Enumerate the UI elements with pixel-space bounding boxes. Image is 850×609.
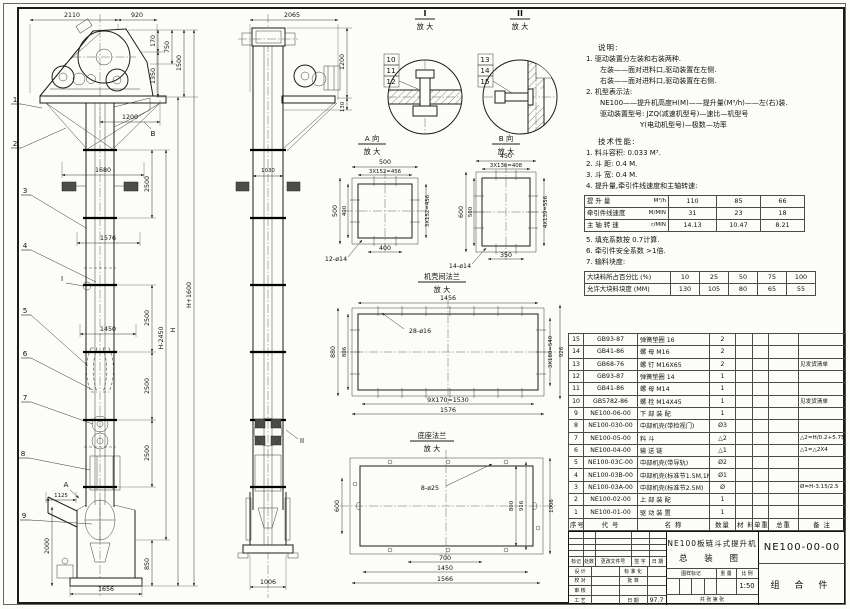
bom-cell [799, 370, 846, 382]
detail-subtitle: 放 大 [434, 285, 451, 294]
bom-cell [769, 506, 799, 518]
tb-label-stamp: 图样标记 [666, 568, 716, 578]
dim-label: 1125 [54, 493, 68, 499]
bom-cell: 2 [710, 334, 736, 346]
block-value: 25 [700, 272, 729, 284]
bom-cell [753, 432, 769, 444]
holes-label: 14-ø14 [449, 263, 471, 270]
bom-cell [736, 469, 753, 481]
bom-cell: 中部机壳(标准节2.5M) [638, 481, 710, 493]
balloon-10: 10 [386, 55, 396, 64]
view-A-detail: A 向 放 大 500 3X152=456 500 400 3X152=456 … [325, 134, 431, 263]
balloon-13: 13 [480, 55, 489, 64]
bom-cell [753, 334, 769, 346]
perf-unit: M³/h [654, 196, 667, 207]
note-line: Y(电动机型号)—极数—功率 [640, 120, 842, 131]
table-row: 牵引件线速度M/MIN312318 [585, 208, 805, 220]
tb-label-process: 工 艺 [569, 595, 591, 605]
bom-cell [769, 370, 799, 382]
bom-cell [769, 407, 799, 419]
bom-cell: 1 [710, 494, 736, 506]
block-value: 50 [729, 272, 758, 284]
bom-cell: GB68-76 [584, 358, 638, 370]
bom-cell: 1 [710, 370, 736, 382]
dim-label: 500 [468, 206, 474, 217]
perf-label-text: 提 升 量 [587, 197, 610, 205]
tb-label-scale: 比 例 [736, 568, 758, 578]
bom-cell: Ø1 [710, 469, 736, 481]
table-row: 提 升 量M³/h1108566 [585, 196, 805, 208]
perf-value: 18 [761, 208, 805, 220]
bom-cell: NE100-02-00 [584, 494, 638, 506]
bom-cell [769, 383, 799, 395]
dim-label: 3X152=456 [369, 169, 402, 175]
detail-II: II 放 大 13 14 15 [478, 9, 557, 136]
base-plate [70, 578, 142, 586]
dim-label: H [170, 327, 177, 332]
perf-value: 8.21 [761, 220, 805, 232]
detail-subtitle: 放 大 [417, 22, 434, 31]
tb-part-type: 组 合 件 [758, 563, 846, 605]
dim-label: 170 [150, 35, 157, 47]
dim-label: 2500 [144, 445, 151, 461]
tb-label-review: 审 核 [569, 585, 591, 595]
bom-cell: 2 [569, 494, 584, 506]
bom-cell [799, 346, 846, 358]
bom-cell: 13 [569, 358, 584, 370]
perf-label: 主 轴 转 速r/MIN [585, 220, 669, 232]
balloon-7: 7 [23, 393, 28, 402]
bom-cell: NE100-03C-00 [584, 457, 638, 469]
balloon-11: 11 [386, 66, 395, 75]
detail-marker-II: II [300, 436, 304, 445]
bom-cell: 料 斗 [638, 432, 710, 444]
bom-cell: NE100-03B-00 [584, 469, 638, 481]
block-value: 105 [700, 284, 729, 296]
tb-date-value: 97.7 [647, 595, 666, 605]
bom-cell [769, 432, 799, 444]
bucket [87, 348, 98, 392]
tb-scale-value: 1:50 [736, 578, 758, 594]
dim-label: 926 [559, 346, 565, 357]
drawing-sheet: 2110 920 170 1350 750 1500 1200 B [0, 0, 850, 609]
dim-label: 2110 [64, 12, 80, 19]
bom-cell [736, 420, 753, 432]
bom-cell [736, 407, 753, 419]
dim-label: 1566 [437, 576, 453, 583]
bom-cell [753, 395, 769, 407]
dim-label: 4X139=556 [543, 195, 549, 228]
bom-cell [753, 444, 769, 456]
bom-cell: GB5782-86 [584, 395, 638, 407]
note-line: NE100——提升机高度H(M)——提升量(M³/h)——左(右)装. [600, 98, 842, 109]
balloon-8: 8 [21, 449, 26, 458]
bom-row: 10GB5782-86螺 栓 M14X451见发货清单 [569, 395, 846, 407]
bom-cell: GB93-87 [584, 370, 638, 382]
tb-label-weight: 重 量 [716, 568, 736, 578]
note-line: 右装——面对进料口,驱动装置在右侧. [600, 76, 842, 87]
title-block: 标记 处数 更改文件号 签 字 日 期 设 计 标 准 化 校 对 批 准 审 … [568, 531, 845, 604]
bom-cell: △1=△2X4 [799, 444, 846, 456]
balloon-15: 15 [480, 77, 489, 86]
bom-cell: 见发货清单 [799, 395, 846, 407]
perf-label: 提 升 量M³/h [585, 196, 669, 208]
block-value: 75 [758, 272, 787, 284]
dim-label: 806 [342, 346, 348, 357]
tb-label-check: 校 对 [569, 576, 591, 585]
bom-cell [753, 420, 769, 432]
bom-cell [753, 506, 769, 518]
bom-cell [769, 494, 799, 506]
bom-row: 9NE100-06-00下 部 装 配1 [569, 407, 846, 419]
bom-row: 7NE100-05-00料 斗△2△2=H/0.2+5.75 [569, 432, 846, 444]
block-value: 55 [787, 284, 816, 296]
bom-row: 5NE100-03C-00中部机壳(带导轨)Ø2 [569, 457, 846, 469]
bom-row: 12GB93-87弹簧垫圈 141 [569, 370, 846, 382]
tb-sheet-name: 总 装 图 [666, 551, 758, 565]
bom-cell: 11 [569, 383, 584, 395]
tb-product-name: NE100板链斗式提升机 [666, 536, 758, 550]
bom-row: 2NE100-02-00上 部 装 配1 [569, 494, 846, 506]
bom-cell [769, 420, 799, 432]
tech-notes: 5. 填充系数按 0.7计算.6. 牵引件安全系数 >1倍.7. 输料块度: [584, 235, 842, 268]
detail-title: 底座法兰 [418, 431, 447, 440]
dim-label: 9X170=1530 [427, 397, 469, 404]
bom-row: 3NE100-03A-00中部机壳(标准节2.5M)ØØ=H-3.15/2.5 [569, 481, 846, 493]
dim-label: 2500 [144, 176, 151, 192]
dim-label: 3X152=456 [425, 194, 431, 227]
front-view: 2110 920 170 1350 750 1500 1200 B [11, 12, 198, 597]
balloon-12: 12 [386, 77, 395, 86]
perf-value: 10.47 [717, 220, 761, 232]
bom-cell: 12 [569, 370, 584, 382]
block-value: 100 [787, 272, 816, 284]
bom-cell [736, 370, 753, 382]
tb-drawing-number: NE100-00-00 [758, 532, 846, 563]
wall-bracket [62, 182, 76, 191]
perf-value: 85 [717, 196, 761, 208]
note-line: 2. 机型表示法: [586, 87, 842, 98]
dim-label: 3X136=408 [490, 163, 523, 169]
bom-cell [753, 481, 769, 493]
bom-header-cell: 总重 [769, 518, 799, 530]
bom-cell [736, 358, 753, 370]
bom-cell [736, 506, 753, 518]
bom-cell [799, 407, 846, 419]
dim-label: 1450 [437, 565, 453, 572]
bom-cell [799, 494, 846, 506]
dim-label: 500 [379, 159, 391, 166]
bom-row: 14GB41-86螺 母 M162 [569, 346, 846, 358]
bom-cell: 4 [569, 469, 584, 481]
bom-cell [736, 383, 753, 395]
tech-title: 技术性能: [598, 136, 842, 147]
block-label: 大块料所占百分比 (%) [585, 272, 671, 284]
dim-label: 916 [519, 500, 525, 511]
perf-value: 23 [717, 208, 761, 220]
bom-cell [753, 469, 769, 481]
tech-item: 5. 填充系数按 0.7计算. [586, 235, 842, 246]
balloon-3: 3 [23, 186, 28, 195]
bom-header-cell: 代 号 [584, 518, 638, 530]
table-row: 主 轴 转 速r/MIN14.1310.478.21 [585, 220, 805, 232]
dim-label: 1200 [339, 54, 346, 70]
bom-cell: 3 [569, 481, 584, 493]
bom-cell: 5 [569, 457, 584, 469]
bom-cell [736, 457, 753, 469]
bom-cell [736, 494, 753, 506]
bom-cell: 2 [710, 346, 736, 358]
bom-cell [736, 432, 753, 444]
bom-cell [769, 358, 799, 370]
bom-cell [736, 444, 753, 456]
dim-label: H-2450 [158, 326, 165, 349]
bom-cell: NE100-030-00 [584, 420, 638, 432]
dim-label: 400 [342, 205, 348, 216]
bom-cell [753, 370, 769, 382]
bom-row: 13GB68-76螺 钉 M16X652见发货清单 [569, 358, 846, 370]
tb-label-doc: 更改文件号 [595, 556, 631, 566]
bom-cell [753, 358, 769, 370]
balloon-2: 2 [13, 139, 18, 148]
bom-cell [736, 334, 753, 346]
tech-item: 4. 提升量,牵引件线速度和主轴转速: [586, 181, 842, 192]
bom-cell: 上 部 装 配 [638, 494, 710, 506]
tb-sheet-count: 共 张 第 张 [666, 594, 758, 605]
bom-cell [736, 346, 753, 358]
bom-cell [769, 395, 799, 407]
balloon-5: 5 [23, 306, 28, 315]
lump-size-table: 大块料所占百分比 (%)10255075100允许大块料块度 (MM)13010… [584, 271, 816, 296]
dim-label: 2065 [284, 12, 300, 19]
bom-cell: 弹簧垫圈 16 [638, 334, 710, 346]
tech-lines: 1. 料斗容积: 0.033 M³.2. 斗 距: 0.4 M.3. 斗 宽: … [584, 148, 842, 192]
bom-cell: 螺 母 M16 [638, 346, 710, 358]
perf-value: 66 [761, 196, 805, 208]
flange-detail: 机壳间法兰 放 大 1456 28-ø16 880 806 3X180=540 … [330, 272, 565, 414]
tb-label-sign: 签 字 [631, 556, 649, 566]
bom-cell [736, 481, 753, 493]
bom-cell: 7 [569, 432, 584, 444]
bom-cell [799, 420, 846, 432]
bom-cell: △2=H/0.2+5.75 [799, 432, 846, 444]
perf-value: 110 [669, 196, 717, 208]
bom-header-cell: 名 称 [638, 518, 710, 530]
bom-header-cell: 单重 [753, 518, 769, 530]
bom-header-row: 序号代 号名 称数量材 料单重总重备 注 [569, 518, 846, 530]
dim-label: 1656 [98, 586, 114, 593]
dim-label: 3X180=540 [548, 335, 554, 368]
tb-label-date2: 日 期 [619, 595, 647, 605]
tb-label-approve: 批 准 [619, 576, 647, 585]
bom-cell: 驱 动 装 置 [638, 506, 710, 518]
bom-cell: 下 部 装 配 [638, 407, 710, 419]
view-marker-A: A [64, 480, 69, 489]
bom-cell: 螺 钉 M16X65 [638, 358, 710, 370]
bom-cell: 2 [710, 358, 736, 370]
perf-label-text: 主 轴 转 速 [587, 221, 619, 229]
dim-label: 1006 [549, 499, 555, 513]
bom-cell [753, 457, 769, 469]
block-value: 130 [671, 284, 700, 296]
detail-title: A 向 [365, 134, 379, 143]
head-section [252, 28, 285, 46]
bom-cell: 见发货清单 [799, 358, 846, 370]
dim-label: 750 [164, 41, 171, 53]
bom-cell: 6 [569, 444, 584, 456]
dim-label: 2000 [44, 538, 51, 554]
bom-cell: NE100-06-00 [584, 407, 638, 419]
dim-label: 1456 [440, 295, 456, 302]
bom-row: 1NE100-01-00驱 动 装 置1 [569, 506, 846, 518]
detail-title: I [424, 9, 427, 18]
dim-label: 1680 [95, 167, 111, 174]
bom-cell: GB93-87 [584, 334, 638, 346]
bom-cell: NE100-04-00 [584, 444, 638, 456]
bucket [103, 348, 114, 392]
bom-cell: 中部机壳(带导轨) [638, 457, 710, 469]
bom-cell [799, 457, 846, 469]
bom-row: 4NE100-03B-00中部机壳(标准节1.5M,1M)Ø1 [569, 469, 846, 481]
block-value: 10 [671, 272, 700, 284]
holes-label: 12-ø14 [325, 256, 347, 263]
tech-item: 2. 斗 距: 0.4 M. [586, 159, 842, 170]
notes-lines: 1. 驱动装置分左装和右装两种.左装——面对进料口,驱动装置在左侧.右装——面对… [584, 54, 842, 131]
balloon-14: 14 [480, 66, 490, 75]
detail-subtitle: 放 大 [424, 444, 441, 453]
block-value: 65 [758, 284, 787, 296]
bom-cell: Ø=H-3.15/2.5 [799, 481, 846, 493]
tech-item: 1. 料斗容积: 0.033 M³. [586, 148, 842, 159]
notes-panel: 说明: 1. 驱动装置分左装和右装两种.左装——面对进料口,驱动装置在左侧.右装… [584, 42, 842, 299]
bom-cell [769, 334, 799, 346]
bom-cell: 1 [710, 407, 736, 419]
bom-cell [799, 506, 846, 518]
dim-label: 1350 [150, 68, 157, 84]
dim-label: 2500 [144, 310, 151, 326]
detail-subtitle: 放 大 [364, 147, 381, 156]
bom-cell: NE100-01-00 [584, 506, 638, 518]
balloon-9: 9 [22, 511, 27, 520]
bom-cell: NE100-03A-00 [584, 481, 638, 493]
bom-cell [769, 481, 799, 493]
tech-item: 3. 斗 宽: 0.4 M. [586, 170, 842, 181]
balloon-1: 1 [13, 95, 18, 104]
view-B-detail: B 向 放 大 450 3X136=408 600 500 4X139=556 … [449, 134, 549, 270]
bom-cell [799, 334, 846, 346]
bom-header-cell: 材 料 [736, 518, 753, 530]
balloon-4: 4 [23, 241, 28, 250]
bom-cell [769, 469, 799, 481]
detail-subtitle: 放 大 [512, 22, 529, 31]
dim-label: 920 [131, 12, 143, 19]
dim-label: 600 [334, 500, 341, 512]
bom-cell: 15 [569, 334, 584, 346]
bom-row: 6NE100-04-00输 送 链△1△1=△2X4 [569, 444, 846, 456]
bom-header-cell: 序号 [569, 518, 584, 530]
balloon-6: 6 [23, 349, 28, 358]
bom-cell: 输 送 链 [638, 444, 710, 456]
perf-value: 14.13 [669, 220, 717, 232]
dim-label: 1200 [122, 114, 138, 121]
perf-label: 牵引件线速度M/MIN [585, 208, 669, 220]
tb-label-count: 处数 [583, 556, 595, 566]
base-detail: 底座法兰 放 大 8-ø25 600 800 916 1006 [334, 431, 556, 583]
note-line: 1. 驱动装置分左装和右装两种. [586, 54, 842, 65]
holes-label: 8-ø25 [421, 485, 439, 492]
bom-header-cell: 备 注 [799, 518, 846, 530]
dim-label: 400 [379, 245, 391, 252]
bom-cell: GB41-86 [584, 346, 638, 358]
perf-unit: M/MIN [649, 208, 666, 219]
bom-cell: △2 [710, 432, 736, 444]
detailI-balloons: 10 11 12 [384, 54, 418, 89]
bom-cell: Ø2 [710, 457, 736, 469]
bom-cell: Ø [710, 481, 736, 493]
view-marker-B: B [151, 129, 156, 138]
dim-label: 600 [458, 206, 465, 218]
bom-cell: 1 [569, 506, 584, 518]
dim-label: 1500 [176, 55, 183, 71]
motor [324, 66, 340, 90]
bom-cell [753, 494, 769, 506]
bom-cell [799, 383, 846, 395]
bom-cell: GB41-86 [584, 383, 638, 395]
dim-label: 1576 [440, 407, 456, 414]
bom-cell [736, 395, 753, 407]
bom-cell: 螺 母 M14 [638, 383, 710, 395]
dim-label: 850 [144, 558, 151, 570]
table-row: 大块料所占百分比 (%)10255075100 [585, 272, 816, 284]
block-value: 80 [729, 284, 758, 296]
note-line: 驱动装置型号: JZQ(减速机型号)—速比—机型号 [600, 109, 842, 120]
detail-marker-I: I [61, 274, 63, 283]
bom-cell: 1 [710, 383, 736, 395]
bom-cell: 1 [710, 395, 736, 407]
bom-cell: 14 [569, 346, 584, 358]
dim-label: 130 [340, 101, 346, 112]
dim-label: 450 [500, 153, 512, 160]
dim-label: 1450 [100, 326, 116, 333]
detail-title: II [517, 9, 523, 18]
block-label: 允许大块料块度 (MM) [585, 284, 671, 296]
perf-label-text: 牵引件线速度 [587, 209, 625, 217]
bom-cell [769, 346, 799, 358]
bom-cell: Ø3 [710, 420, 736, 432]
detail-I: I 放 大 10 11 12 [384, 9, 462, 134]
dim-label: 500 [332, 205, 339, 217]
detail-title: B 向 [499, 134, 513, 143]
tb-label-design: 设 计 [569, 566, 591, 576]
dim-label: 700 [439, 555, 451, 562]
bom-cell [753, 407, 769, 419]
bom-row: 11GB41-86螺 母 M141 [569, 383, 846, 395]
bom-cell [753, 346, 769, 358]
holes-label: 28-ø16 [409, 328, 431, 335]
bom-cell [753, 383, 769, 395]
dim-label: 2500 [144, 378, 151, 394]
dim-label: 350 [500, 252, 512, 259]
dim-label: H+1600 [186, 282, 193, 308]
table-row: 允许大块料块度 (MM)130105806555 [585, 284, 816, 296]
tb-label-standardize: 标 准 化 [619, 566, 647, 576]
bom-header-cell: 数量 [710, 518, 736, 530]
tb-label-date: 日 期 [649, 556, 666, 566]
note-line: 左装——面对进料口,驱动装置在左侧. [600, 65, 842, 76]
tech-item: 6. 牵引件安全系数 >1倍. [586, 246, 842, 257]
bom-cell: 10 [569, 395, 584, 407]
bom-cell: 8 [569, 420, 584, 432]
